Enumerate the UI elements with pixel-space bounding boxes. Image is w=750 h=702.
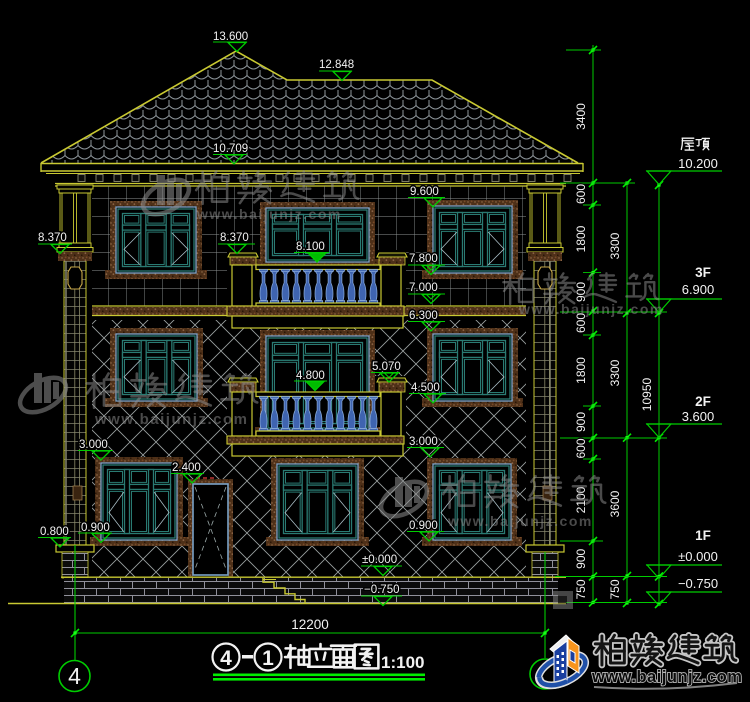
svg-text:www.baijunjz.com: www.baijunjz.com [591,668,742,686]
svg-text:1800: 1800 [574,225,588,252]
svg-text:10.200: 10.200 [678,156,718,171]
svg-text:±0.000: ±0.000 [678,549,718,564]
svg-text:1:100: 1:100 [381,653,424,672]
svg-text:900: 900 [574,412,588,432]
svg-text:4.800: 4.800 [296,370,325,382]
svg-text:4: 4 [220,647,232,670]
svg-text:750: 750 [574,579,588,599]
svg-text:600: 600 [574,184,588,204]
svg-text:12200: 12200 [291,617,329,632]
svg-text:6.300: 6.300 [409,310,438,322]
svg-text:3.000: 3.000 [409,436,438,448]
svg-text:7.000: 7.000 [409,282,438,294]
svg-text:www.baijunjz.com: www.baijunjz.com [94,411,248,428]
svg-text:900: 900 [574,548,588,568]
svg-text:3F: 3F [695,265,711,280]
svg-text:www.baijunjz.com: www.baijunjz.com [447,513,593,529]
svg-text:www.baijunjz.com: www.baijunjz.com [518,301,664,317]
svg-text:0.800: 0.800 [40,526,69,538]
svg-text:0.900: 0.900 [81,522,110,534]
svg-text:2.400: 2.400 [172,462,201,474]
svg-text:5.070: 5.070 [372,361,401,373]
svg-text:8.370: 8.370 [38,232,67,244]
svg-text:750: 750 [608,579,622,599]
svg-text:−0.750: −0.750 [678,576,718,591]
svg-text:10.709: 10.709 [213,143,248,155]
svg-text:0.900: 0.900 [409,520,438,532]
svg-text:www.baijunjz.com: www.baijunjz.com [196,206,342,222]
svg-text:8.100: 8.100 [296,241,325,253]
svg-text:1800: 1800 [574,357,588,384]
svg-text:3400: 3400 [574,103,588,130]
svg-text:4.500: 4.500 [411,382,440,394]
svg-text:7.800: 7.800 [409,253,438,265]
svg-text:3300: 3300 [608,359,622,386]
svg-text:9.600: 9.600 [410,186,439,198]
svg-text:3300: 3300 [608,232,622,259]
svg-text:3.000: 3.000 [79,439,108,451]
svg-text:12.848: 12.848 [319,59,354,71]
svg-text:3600: 3600 [608,490,622,517]
svg-text:600: 600 [574,438,588,458]
svg-text:−0.750: −0.750 [364,584,400,596]
svg-text:1F: 1F [695,528,711,543]
svg-text:10950: 10950 [640,377,654,411]
svg-text:2F: 2F [695,394,711,409]
svg-text:4: 4 [68,663,81,689]
svg-text:3.600: 3.600 [682,409,715,424]
svg-text:6.900: 6.900 [682,282,715,297]
svg-text:±0.000: ±0.000 [362,554,397,566]
svg-text:8.370: 8.370 [220,232,249,244]
svg-text:13.600: 13.600 [213,31,248,43]
svg-text:1: 1 [262,647,274,670]
